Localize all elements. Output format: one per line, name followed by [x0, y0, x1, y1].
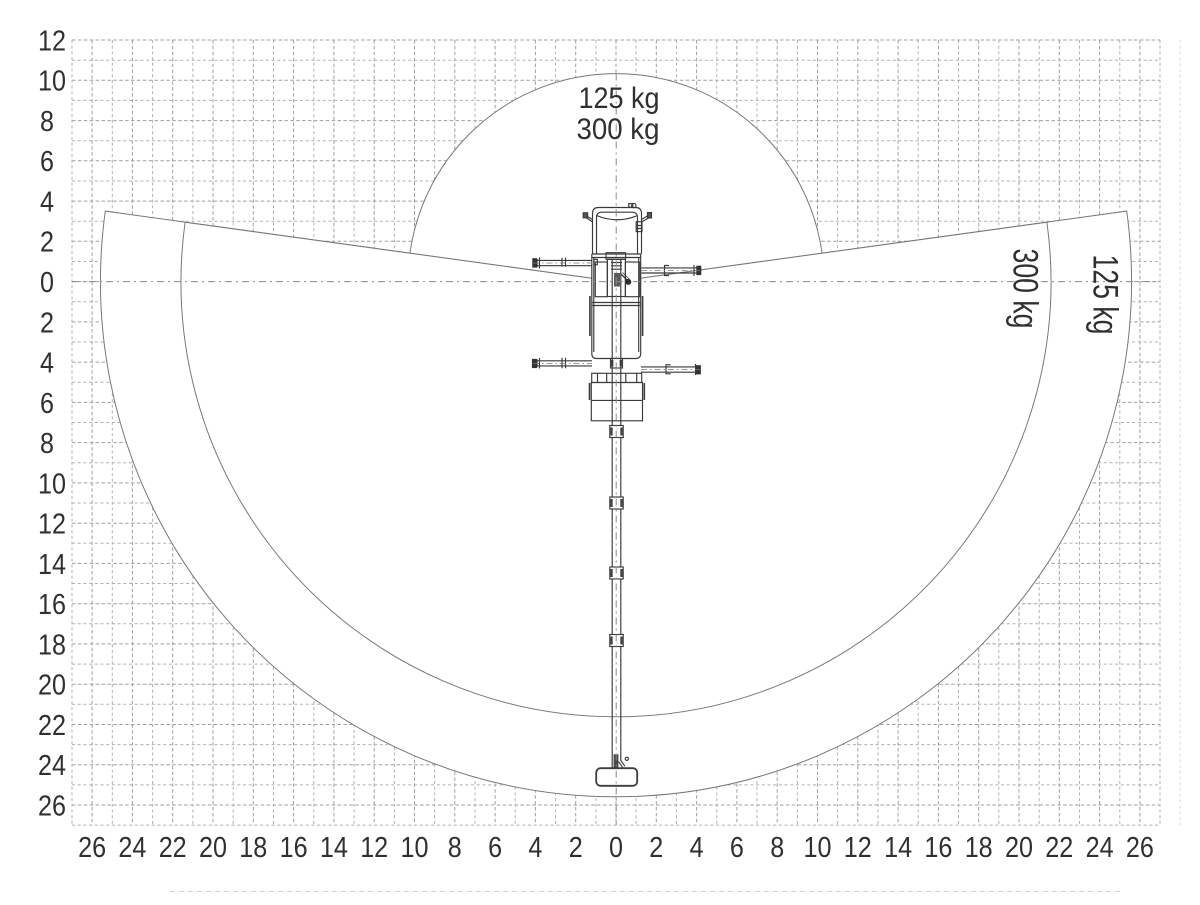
- svg-text:4: 4: [690, 832, 704, 864]
- svg-text:12: 12: [38, 509, 66, 541]
- svg-text:4: 4: [40, 187, 54, 219]
- svg-text:10: 10: [38, 66, 66, 98]
- svg-text:125 kg: 125 kg: [1085, 255, 1124, 335]
- svg-text:18: 18: [38, 629, 66, 661]
- svg-text:6: 6: [488, 832, 502, 864]
- svg-text:24: 24: [1086, 832, 1114, 864]
- svg-text:22: 22: [159, 832, 187, 864]
- svg-text:0: 0: [40, 267, 54, 299]
- svg-text:18: 18: [239, 832, 267, 864]
- svg-text:14: 14: [320, 832, 348, 864]
- svg-text:2: 2: [569, 832, 583, 864]
- svg-text:6: 6: [40, 146, 54, 178]
- svg-text:8: 8: [40, 106, 54, 138]
- svg-text:26: 26: [38, 790, 66, 822]
- svg-text:26: 26: [1126, 832, 1154, 864]
- svg-text:8: 8: [770, 832, 784, 864]
- svg-text:300 kg: 300 kg: [577, 113, 660, 146]
- svg-text:14: 14: [38, 549, 66, 581]
- svg-text:2: 2: [649, 832, 663, 864]
- svg-text:10: 10: [804, 832, 832, 864]
- svg-text:16: 16: [280, 832, 308, 864]
- svg-text:0: 0: [609, 832, 623, 864]
- svg-text:24: 24: [118, 832, 146, 864]
- svg-text:24: 24: [38, 750, 66, 782]
- svg-text:16: 16: [38, 589, 66, 621]
- svg-text:12: 12: [844, 832, 872, 864]
- svg-text:2: 2: [40, 307, 54, 339]
- svg-text:20: 20: [38, 670, 66, 702]
- svg-text:10: 10: [401, 832, 429, 864]
- svg-text:20: 20: [1005, 832, 1033, 864]
- svg-text:16: 16: [924, 832, 952, 864]
- svg-text:4: 4: [528, 832, 542, 864]
- svg-text:4: 4: [40, 348, 54, 380]
- svg-text:10: 10: [38, 468, 66, 500]
- svg-text:20: 20: [199, 832, 227, 864]
- svg-text:2: 2: [40, 227, 54, 259]
- svg-text:26: 26: [78, 832, 106, 864]
- svg-text:14: 14: [884, 832, 912, 864]
- svg-text:22: 22: [1045, 832, 1073, 864]
- svg-text:12: 12: [38, 25, 66, 57]
- svg-text:22: 22: [38, 710, 66, 742]
- svg-text:18: 18: [965, 832, 993, 864]
- svg-text:8: 8: [40, 428, 54, 460]
- svg-text:12: 12: [360, 832, 388, 864]
- svg-text:300 kg: 300 kg: [1005, 249, 1044, 329]
- svg-text:8: 8: [448, 832, 462, 864]
- svg-text:125 kg: 125 kg: [579, 82, 660, 115]
- svg-text:6: 6: [730, 832, 744, 864]
- svg-text:6: 6: [40, 388, 54, 420]
